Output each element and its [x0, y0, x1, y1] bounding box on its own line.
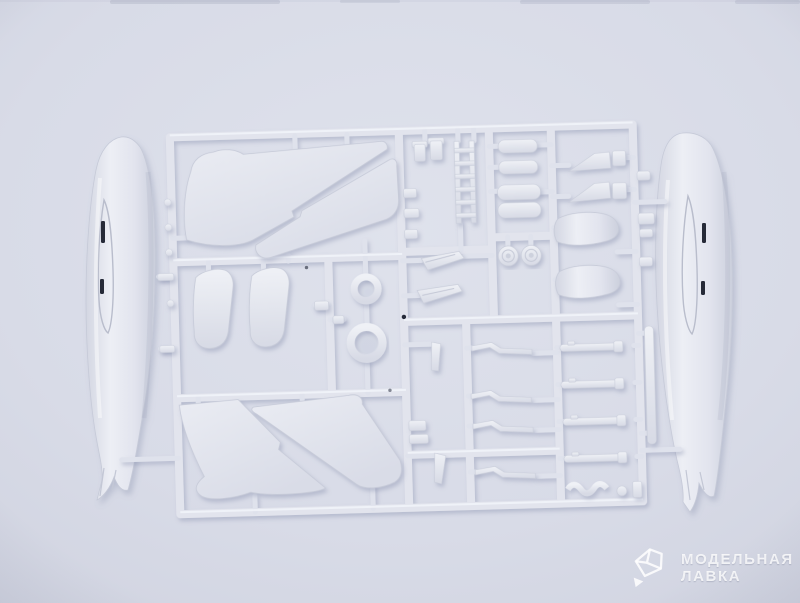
- watermark: МОДЕЛЬНАЯ ЛАВКА: [628, 544, 794, 592]
- watermark-text: МОДЕЛЬНАЯ ЛАВКА: [681, 551, 794, 585]
- gem-sparkle-triangle: [634, 578, 644, 588]
- watermark-line1: МОДЕЛЬНАЯ: [681, 551, 794, 568]
- photo-vignette: [0, 0, 800, 603]
- gem-outline: [634, 547, 665, 577]
- photo-model-kit-sprue: МОДЕЛЬНАЯ ЛАВКА: [0, 0, 800, 603]
- watermark-line2: ЛАВКА: [681, 568, 794, 585]
- sprue-illustration: [0, 0, 800, 603]
- crystal-gem-logo-icon: [628, 544, 672, 592]
